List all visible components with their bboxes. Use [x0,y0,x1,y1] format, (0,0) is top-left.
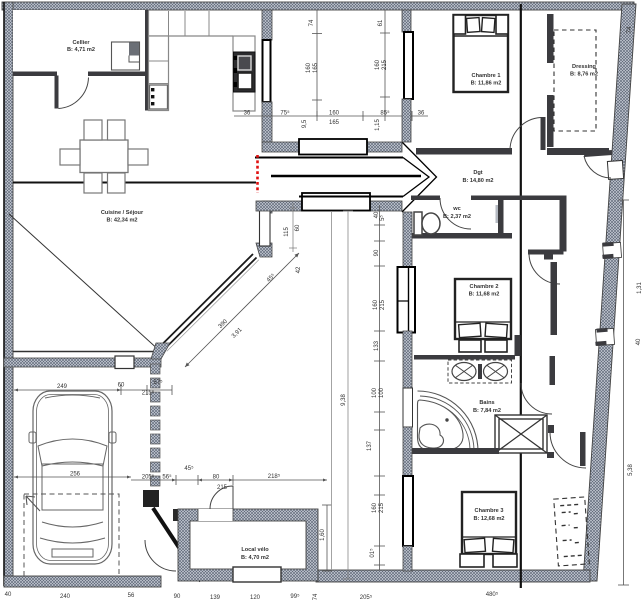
svg-text:165: 165 [329,120,340,126]
svg-text:215: 215 [380,299,386,310]
svg-text:Bains: Bains [479,400,494,406]
svg-text:74: 74 [309,19,315,26]
svg-text:160: 160 [329,111,340,117]
svg-text:B: 12,68 m2: B: 12,68 m2 [473,516,504,522]
svg-text:B: 4,70 m2: B: 4,70 m2 [241,555,269,561]
svg-text:42: 42 [296,266,302,273]
svg-text:160: 160 [306,62,312,73]
svg-text:45⁵: 45⁵ [184,465,194,472]
svg-text:249: 249 [57,384,68,390]
svg-text:160: 160 [375,59,381,70]
svg-text:1,60: 1,60 [320,529,326,541]
svg-text:256: 256 [70,472,81,478]
svg-text:205⁵: 205⁵ [142,474,155,481]
svg-text:56: 56 [128,593,135,599]
svg-text:480⁵: 480⁵ [486,591,499,598]
svg-text:B: 7,84 m2: B: 7,84 m2 [473,408,501,414]
svg-text:36: 36 [418,111,425,117]
svg-text:165: 165 [313,62,319,73]
svg-text:160: 160 [373,299,379,310]
svg-text:B: 14,80 m2: B: 14,80 m2 [462,178,493,184]
svg-text:61: 61 [378,19,384,26]
svg-text:B: 42,34 m2: B: 42,34 m2 [106,218,137,224]
svg-text:75⁵: 75⁵ [280,110,290,117]
svg-text:74: 74 [627,26,633,33]
svg-text:218⁵: 218⁵ [268,473,281,480]
svg-text:60: 60 [118,383,125,389]
svg-text:Local vélo: Local vélo [241,547,269,553]
svg-text:Cellier: Cellier [72,40,90,46]
svg-text:5⁵: 5⁵ [379,215,386,221]
svg-text:215: 215 [379,502,385,513]
svg-text:60: 60 [295,224,301,231]
svg-text:56⁵: 56⁵ [162,474,172,481]
svg-text:215: 215 [382,59,388,70]
svg-text:1,15: 1,15 [375,119,381,131]
svg-text:139: 139 [210,595,221,600]
svg-text:40: 40 [5,592,12,598]
svg-text:215⁵: 215⁵ [142,390,155,397]
svg-text:40: 40 [636,338,642,345]
svg-text:B: 11,68 m2: B: 11,68 m2 [469,292,500,298]
svg-text:133: 133 [374,340,380,351]
svg-text:36: 36 [244,111,251,117]
svg-text:205⁵: 205⁵ [360,594,373,600]
svg-text:Dgt: Dgt [473,170,482,176]
svg-text:B: 2,37 m2: B: 2,37 m2 [443,214,471,220]
svg-text:wc: wc [452,206,460,212]
svg-text:80: 80 [213,475,220,481]
svg-text:215: 215 [217,485,228,491]
svg-text:B: 11,86 m2: B: 11,86 m2 [471,81,502,87]
svg-text:Chambre 2: Chambre 2 [470,284,499,290]
svg-text:100: 100 [379,387,385,398]
svg-text:90: 90 [374,249,380,256]
svg-text:Chambre 3: Chambre 3 [475,508,504,514]
svg-text:Dressing: Dressing [572,64,597,70]
svg-text:01⁵: 01⁵ [369,548,376,558]
svg-text:74: 74 [313,593,319,600]
svg-text:137: 137 [367,440,373,451]
svg-text:9,5: 9,5 [302,119,308,128]
svg-text:Chambre 1: Chambre 1 [472,73,501,79]
svg-text:85⁵: 85⁵ [380,110,390,117]
svg-text:240: 240 [60,594,71,600]
svg-text:100: 100 [372,387,378,398]
svg-text:99⁵: 99⁵ [290,593,300,600]
svg-text:B: 8,76 m2: B: 8,76 m2 [570,72,598,78]
svg-text:5,38: 5,38 [628,464,634,476]
svg-text:160: 160 [372,502,378,513]
svg-text:1,31: 1,31 [637,282,643,294]
svg-text:Cuisine / Séjour: Cuisine / Séjour [101,210,144,216]
svg-text:9,38: 9,38 [341,394,347,406]
svg-text:90: 90 [174,594,181,600]
svg-text:115: 115 [284,227,290,237]
svg-text:57⁵: 57⁵ [153,379,163,386]
svg-text:120: 120 [250,595,261,600]
svg-text:B: 4,71 m2: B: 4,71 m2 [67,47,95,53]
